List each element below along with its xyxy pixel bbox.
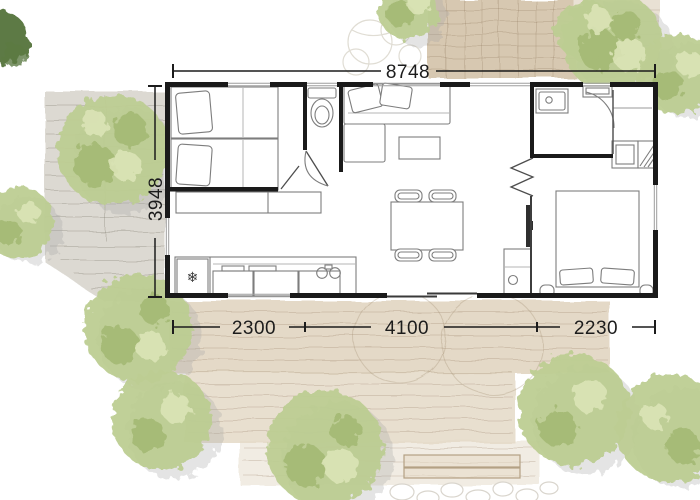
dining-chair <box>395 190 422 202</box>
floor-plan-canvas: ❄ <box>0 0 700 500</box>
pillow <box>176 144 213 186</box>
dim-bottom: 2300 4100 2230 <box>173 318 655 339</box>
snowflake-icon: ❄ <box>187 269 199 285</box>
dim-bottom-label-3: 2230 <box>574 318 618 339</box>
dim-top-label: 8748 <box>386 62 430 83</box>
toilet-tank <box>308 88 336 98</box>
dining-chair <box>429 249 456 261</box>
desk <box>504 249 531 296</box>
dining-chair <box>429 190 456 202</box>
dim-left-label: 3948 <box>146 177 167 221</box>
dining-chair <box>395 249 422 261</box>
pillow <box>175 91 212 135</box>
coffee-table <box>399 137 440 159</box>
dining-table <box>391 202 463 250</box>
hatched-wardrobe <box>638 141 655 168</box>
toilet-bowl <box>311 99 333 127</box>
terrace-bench <box>404 455 520 478</box>
sofa-pillow <box>379 83 412 109</box>
floorplan-scene: ❄ <box>0 0 700 500</box>
dark-foliage-corner-icon <box>0 12 28 67</box>
tv <box>526 205 530 247</box>
dim-bottom-label-2: 4100 <box>385 318 429 339</box>
dim-bottom-label-1: 2300 <box>232 318 276 339</box>
sofa-chaise <box>344 124 385 162</box>
pillow <box>601 268 635 285</box>
pillow <box>559 268 593 285</box>
